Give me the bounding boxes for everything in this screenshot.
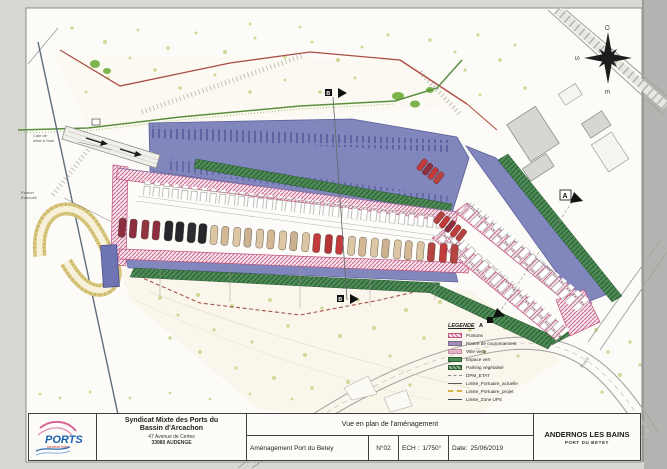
scale-cell: ECH :1/750° — [399, 436, 449, 460]
annotation-ramp-label: Cale de mise à l'eau — [33, 134, 54, 144]
legend-swatch-limite-ups — [448, 399, 462, 400]
legend-item-parking-vegetalise: Parking végétalisé — [448, 363, 580, 371]
scanned-port-plan: Bvard — [0, 0, 667, 469]
client-cell: ANDERNOS LES BAINS PORT DU BETEY — [534, 414, 640, 460]
legend-item-pontons: Pontons — [448, 331, 580, 339]
client-name: ANDERNOS LES BAINS — [544, 430, 629, 439]
legend-swatch-voie-verte — [448, 349, 462, 354]
svg-text:B: B — [338, 297, 342, 303]
legend-item-voie-verte: Voie verte — [448, 347, 580, 355]
legend: LEGENDE Pontons Poutre de couronnement V… — [448, 323, 580, 403]
legend-swatch-parking — [448, 365, 462, 370]
legend-swatch-limite-actuelle — [448, 383, 462, 384]
legend-item-limite-ups: Limite_Zone UPS — [448, 395, 580, 403]
drawing-info-cell: Vue en plan de l'aménagement Aménagement… — [247, 414, 534, 460]
drawing-title: Vue en plan de l'aménagement — [247, 414, 533, 436]
legend-title: LEGENDE — [448, 323, 580, 329]
project-name: Aménagement Port du Betey — [247, 436, 369, 460]
legend-swatch-poutre — [448, 341, 462, 346]
title-block: PORTS syndicat mixte Syndicat Mixte des … — [28, 413, 641, 461]
svg-text:A: A — [563, 193, 568, 200]
logo-cell: PORTS syndicat mixte — [29, 414, 97, 460]
legend-swatch-pontons — [448, 333, 462, 338]
org-name-line2: Bassin d'Arcachon — [97, 425, 246, 433]
compass-letter-left: S — [573, 56, 580, 61]
compass-letter-bottom: E — [603, 90, 610, 95]
compass-letter-top: O — [603, 25, 610, 30]
legend-item-poutre: Poutre de couronnement — [448, 339, 580, 347]
org-name-line1: Syndicat Mixte des Ports du — [97, 417, 246, 425]
org-city: 33980 AUDENGE — [97, 440, 246, 446]
client-site: PORT DU BETEY — [565, 440, 609, 445]
legend-item-espace-vert: Espace vert — [448, 355, 580, 363]
drawing-meta-row: Aménagement Port du Betey N°02 ECH :1/75… — [247, 436, 533, 460]
legend-swatch-dpm — [448, 375, 462, 376]
legend-item-limite-projet: Limite_Portuaire_projet — [448, 387, 580, 395]
date-cell: Date:25/06/2019 — [449, 436, 533, 460]
legend-swatch-limite-projet — [448, 390, 462, 392]
annotation-pontoon-label: Ponton d'accueil — [21, 191, 36, 201]
legend-swatch-espace-vert — [448, 357, 462, 362]
svg-text:B: B — [326, 91, 330, 97]
legend-item-limite-actuelle: Limite_Portuaire_actuelle — [448, 379, 580, 387]
organization-cell: Syndicat Mixte des Ports du Bassin d'Arc… — [97, 414, 247, 460]
ports-logo: PORTS syndicat mixte — [32, 416, 94, 458]
sheet-number: N°02 — [369, 436, 399, 460]
legend-item-dpm-etat: DPM_ETAT — [448, 371, 580, 379]
